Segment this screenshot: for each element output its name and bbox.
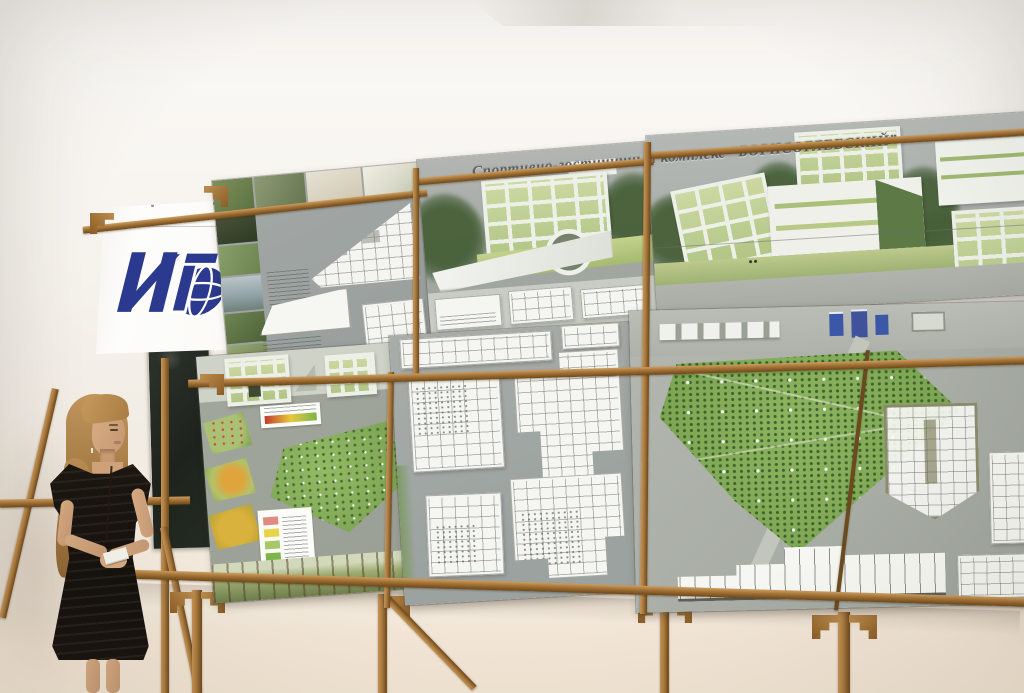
plan-lines (511, 289, 571, 322)
plan-core-wall (924, 420, 938, 484)
wood-post (378, 594, 387, 693)
elevation-hatch (440, 312, 497, 326)
white-slab-building (767, 177, 925, 257)
plan-overlay (883, 403, 980, 521)
floor-plan-medium (425, 492, 504, 577)
board-bottom-right (629, 301, 1024, 613)
gradient-legend (260, 402, 321, 428)
furniture-dots (414, 384, 469, 437)
plan-lines (992, 454, 1024, 541)
wood-post (660, 600, 669, 693)
elevation-drawing (508, 286, 575, 325)
eyebrow (109, 424, 118, 426)
floor-plan-restaurant (510, 472, 628, 580)
legend-chip (263, 516, 279, 525)
green-band (940, 152, 1024, 162)
aerial-city-strip (629, 301, 1024, 357)
triangular-floor-plan (303, 201, 422, 291)
legend-labels (282, 515, 309, 559)
wood-post (192, 590, 202, 693)
elevation-drawing (434, 294, 502, 331)
plan-room (361, 230, 380, 244)
stripe-building-right (935, 136, 1024, 206)
presenter-woman (12, 388, 187, 693)
green-band (941, 170, 1024, 180)
photo-meadow (218, 243, 261, 277)
wood-vertical-rail (413, 168, 419, 374)
earring (91, 448, 93, 453)
blue-glass-tower (829, 314, 844, 336)
red-markers (209, 418, 247, 449)
plan-room (324, 241, 347, 257)
white-building-row (659, 321, 779, 340)
chalk-smudge (155, 349, 186, 370)
photo-waterfall (221, 275, 264, 312)
legend-chip (264, 528, 280, 537)
blue-glass-tower (851, 311, 868, 337)
plans-band-fragment (561, 322, 620, 349)
analysis-map (207, 503, 262, 551)
plan-lines (960, 556, 1024, 596)
plan-lines (402, 334, 549, 367)
floor-plan-large (408, 374, 505, 473)
plan-lines (564, 326, 617, 347)
leg-right (106, 659, 120, 693)
legend-chip (265, 540, 281, 549)
eye (110, 429, 118, 431)
ceiling-corner-shadow (470, 0, 800, 26)
institute-globe-logo (109, 230, 221, 336)
plan-lines (306, 204, 418, 287)
legend-gradient-bar (265, 412, 317, 424)
analysis-map (202, 411, 253, 454)
blue-glass-tower (875, 315, 888, 335)
photo-forest2 (224, 311, 267, 345)
plans-band (399, 330, 553, 369)
wood-post (838, 612, 850, 693)
plan-fragment-bottom-right (957, 553, 1024, 599)
gray-block (911, 311, 945, 332)
analysis-map (204, 457, 257, 503)
plan-fragment-right (989, 451, 1024, 544)
color-legend-box (257, 507, 315, 565)
board-bottom-middle (389, 322, 645, 606)
banner-pin (151, 204, 154, 207)
leg-left (86, 659, 100, 693)
dark-green-wedge (875, 177, 925, 250)
lips (114, 441, 121, 444)
presentation-room-photo: Спортивно-гостиничный комплекс “БОРИСОГЛ… (0, 0, 1024, 693)
table-chair-dots (520, 509, 583, 568)
tiny-figures (748, 257, 758, 266)
furniture-dots (434, 523, 476, 565)
